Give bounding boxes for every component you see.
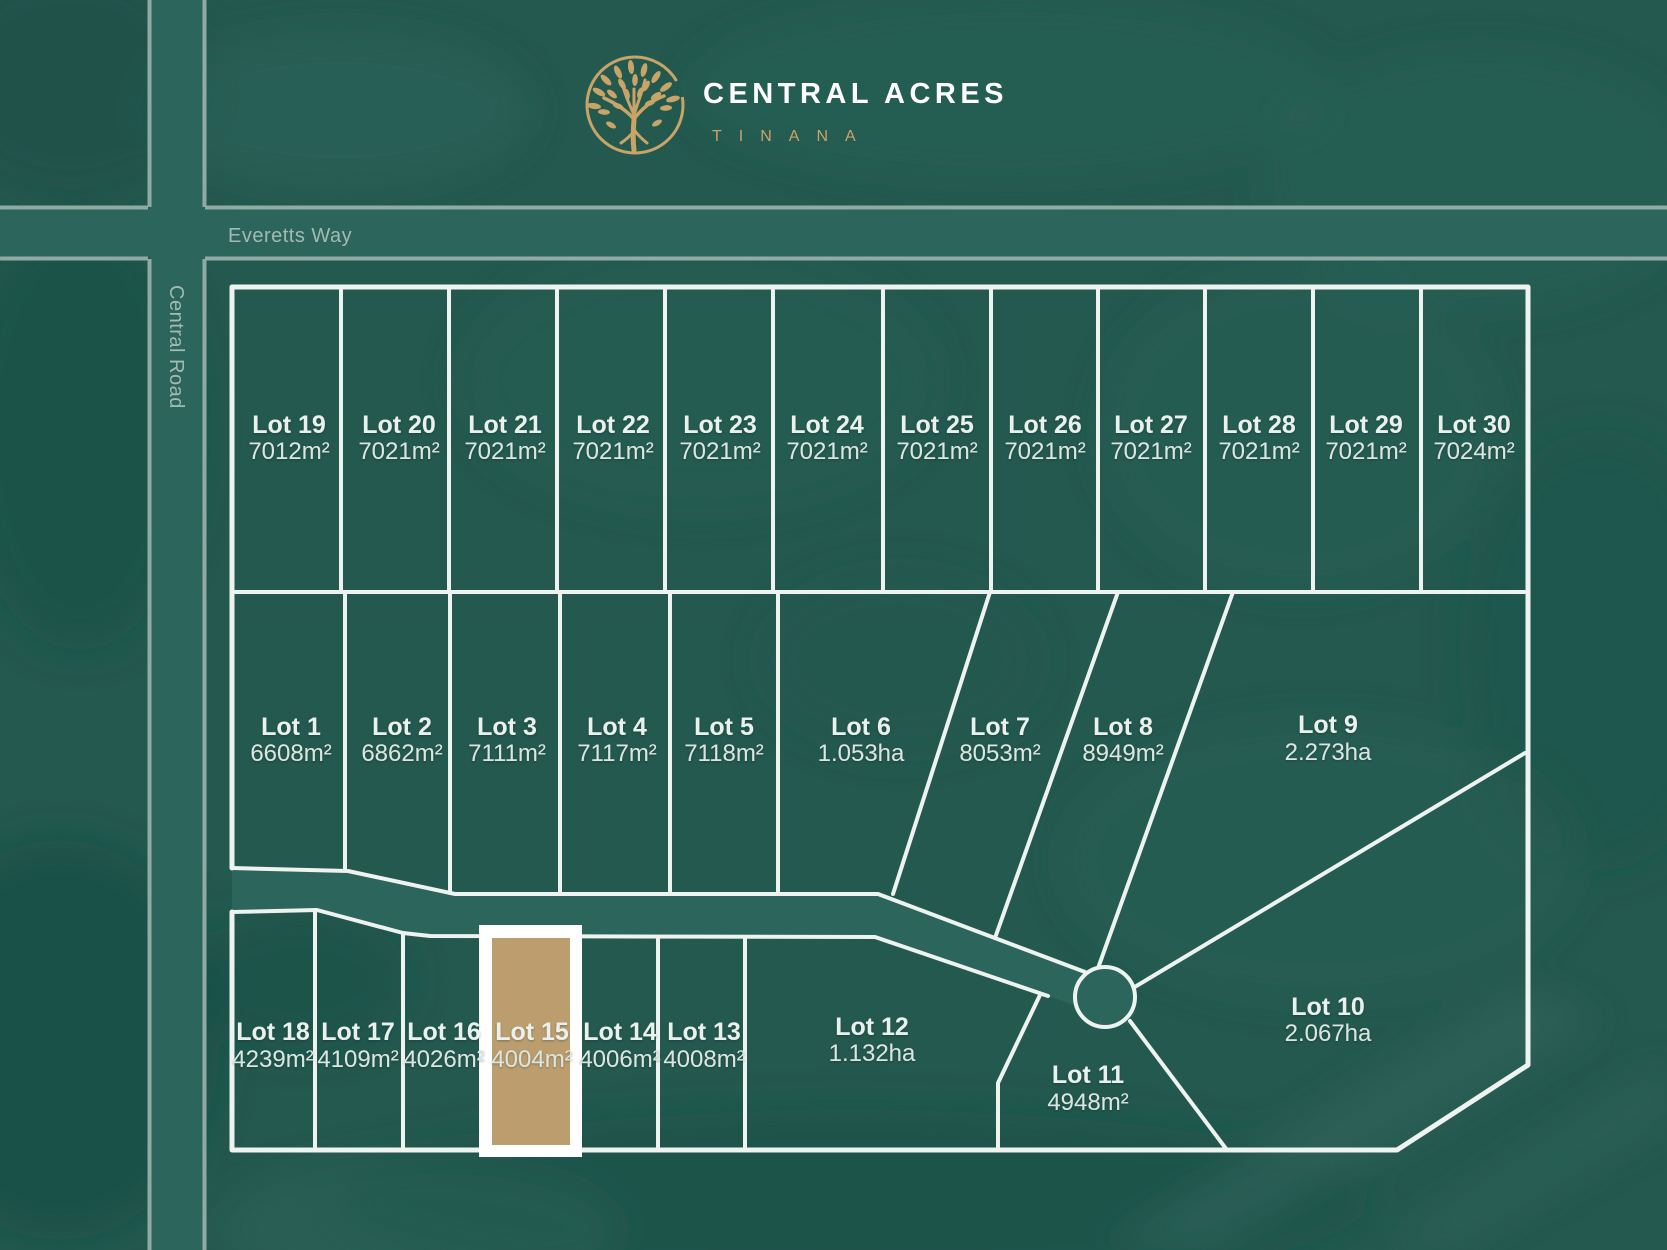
- lot-21-label: Lot 217021m²: [464, 411, 545, 465]
- lot-16-label: Lot 164026m²: [403, 1018, 484, 1073]
- lot-13-label: Lot 134008m²: [663, 1018, 744, 1073]
- lot-26-label: Lot 267021m²: [1004, 411, 1085, 465]
- svg-text:7021m²: 7021m²: [1110, 438, 1191, 465]
- lot-4-label: Lot 47117m²: [577, 713, 657, 767]
- svg-text:Lot 3: Lot 3: [477, 713, 537, 741]
- svg-text:1.132ha: 1.132ha: [829, 1040, 916, 1067]
- lot-24-label: Lot 247021m²: [786, 411, 867, 465]
- svg-text:2.067ha: 2.067ha: [1285, 1020, 1372, 1047]
- svg-text:4239m²: 4239m²: [232, 1046, 313, 1073]
- svg-text:7021m²: 7021m²: [358, 438, 439, 465]
- lot-8-label: Lot 88949m²: [1082, 713, 1163, 767]
- svg-text:7021m²: 7021m²: [679, 438, 760, 465]
- svg-text:Lot 2: Lot 2: [372, 713, 432, 741]
- svg-text:7021m²: 7021m²: [1218, 438, 1299, 465]
- svg-text:6608m²: 6608m²: [250, 740, 331, 767]
- svg-text:Lot 23: Lot 23: [683, 411, 757, 439]
- svg-text:Lot 21: Lot 21: [468, 411, 542, 439]
- svg-text:8949m²: 8949m²: [1082, 740, 1163, 767]
- lot-1-label: Lot 16608m²: [250, 713, 331, 767]
- lot-5-label: Lot 57118m²: [684, 713, 764, 767]
- svg-text:4004m²: 4004m²: [491, 1046, 572, 1073]
- svg-text:Lot 7: Lot 7: [970, 713, 1030, 741]
- lot-10-label: Lot 102.067ha: [1285, 993, 1372, 1047]
- lot-14-label: Lot 144006m²: [579, 1018, 660, 1073]
- svg-text:Lot 8: Lot 8: [1093, 713, 1153, 741]
- lot-15-label: Lot 154004m²: [491, 1018, 572, 1073]
- svg-text:Lot 16: Lot 16: [407, 1018, 481, 1046]
- svg-text:Lot 26: Lot 26: [1008, 411, 1082, 439]
- svg-text:2.273ha: 2.273ha: [1285, 739, 1372, 766]
- svg-text:Lot 12: Lot 12: [835, 1013, 909, 1041]
- lot-23-label: Lot 237021m²: [679, 411, 760, 465]
- svg-text:Lot 29: Lot 29: [1329, 411, 1403, 439]
- svg-text:7021m²: 7021m²: [1004, 438, 1085, 465]
- svg-text:Lot 27: Lot 27: [1114, 411, 1188, 439]
- svg-text:7111m²: 7111m²: [468, 740, 546, 767]
- svg-text:7021m²: 7021m²: [896, 438, 977, 465]
- svg-text:4948m²: 4948m²: [1047, 1089, 1128, 1116]
- cul-de-sac-outline: [1075, 967, 1135, 1027]
- svg-text:7021m²: 7021m²: [786, 438, 867, 465]
- svg-text:Lot 4: Lot 4: [587, 713, 647, 741]
- road-label-everetts-way: Everetts Way: [228, 225, 352, 247]
- svg-text:7117m²: 7117m²: [577, 740, 657, 767]
- road-label-central-road: Central Road: [165, 285, 187, 409]
- svg-text:7021m²: 7021m²: [1325, 438, 1406, 465]
- lot-28-label: Lot 287021m²: [1218, 411, 1299, 465]
- svg-text:Lot 18: Lot 18: [236, 1018, 310, 1046]
- lot-3-label: Lot 37111m²: [468, 713, 546, 767]
- lot-17-label: Lot 174109m²: [317, 1018, 398, 1073]
- central-road-pavement: [150, 0, 204, 1250]
- logo-subtitle: TINANA: [712, 128, 873, 145]
- svg-text:Lot 28: Lot 28: [1222, 411, 1296, 439]
- lot-18-label: Lot 184239m²: [232, 1018, 313, 1073]
- svg-text:Lot 10: Lot 10: [1291, 993, 1365, 1021]
- svg-text:Lot 9: Lot 9: [1298, 711, 1358, 739]
- svg-text:7021m²: 7021m²: [464, 438, 545, 465]
- lot-19-label: Lot 197012m²: [248, 411, 329, 465]
- lot-11-label: Lot 114948m²: [1047, 1061, 1128, 1116]
- svg-text:Lot 1: Lot 1: [261, 713, 321, 741]
- svg-text:Lot 11: Lot 11: [1052, 1061, 1124, 1089]
- svg-text:Lot 22: Lot 22: [576, 411, 650, 439]
- svg-text:Lot 19: Lot 19: [252, 411, 326, 439]
- svg-text:Lot 14: Lot 14: [583, 1018, 657, 1046]
- svg-text:7118m²: 7118m²: [684, 740, 764, 767]
- svg-text:8053m²: 8053m²: [959, 740, 1040, 767]
- svg-text:6862m²: 6862m²: [361, 740, 442, 767]
- svg-text:Lot 13: Lot 13: [667, 1018, 741, 1046]
- svg-text:7012m²: 7012m²: [248, 438, 329, 465]
- lot-30-label: Lot 307024m²: [1433, 411, 1514, 465]
- svg-text:4109m²: 4109m²: [317, 1046, 398, 1073]
- site-map: Everetts Way Central Road: [0, 0, 1667, 1250]
- lot-27-label: Lot 277021m²: [1110, 411, 1191, 465]
- svg-text:7021m²: 7021m²: [572, 438, 653, 465]
- svg-text:Lot 6: Lot 6: [831, 713, 891, 741]
- svg-text:Lot 20: Lot 20: [362, 411, 436, 439]
- lot-22-label: Lot 227021m²: [572, 411, 653, 465]
- svg-text:7024m²: 7024m²: [1433, 438, 1514, 465]
- svg-text:Lot 17: Lot 17: [321, 1018, 395, 1046]
- lot-2-label: Lot 26862m²: [361, 713, 442, 767]
- svg-text:1.053ha: 1.053ha: [818, 740, 905, 767]
- logo-title: CENTRAL ACRES: [703, 78, 1008, 110]
- svg-text:Lot 5: Lot 5: [694, 713, 754, 741]
- svg-text:Lot 30: Lot 30: [1437, 411, 1511, 439]
- svg-text:4008m²: 4008m²: [663, 1046, 744, 1073]
- lot-12-label: Lot 121.132ha: [829, 1013, 916, 1067]
- lot-7-label: Lot 78053m²: [959, 713, 1040, 767]
- lot-29-label: Lot 297021m²: [1325, 411, 1406, 465]
- svg-text:Lot 15: Lot 15: [495, 1018, 569, 1046]
- svg-text:Lot 25: Lot 25: [900, 411, 974, 439]
- svg-text:4006m²: 4006m²: [579, 1046, 660, 1073]
- svg-text:Lot 24: Lot 24: [790, 411, 864, 439]
- lot-25-label: Lot 257021m²: [896, 411, 977, 465]
- svg-text:4026m²: 4026m²: [403, 1046, 484, 1073]
- lot-20-label: Lot 207021m²: [358, 411, 439, 465]
